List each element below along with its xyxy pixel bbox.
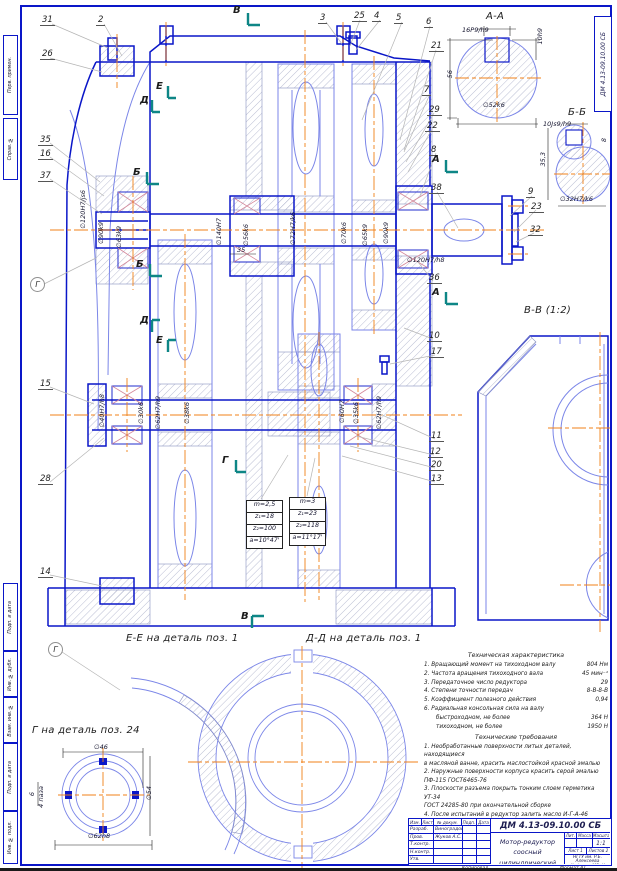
- dimension-label: Б-Б: [568, 108, 586, 118]
- tech-char-text: тихоходном, не более: [436, 723, 502, 732]
- dimension-label: 10Js9/h9: [543, 121, 571, 128]
- tech-char-text: 6. Радиальная консольная сила на валу: [424, 705, 544, 714]
- dimension-label: ∅65k9: [362, 224, 369, 246]
- dimension-label: ∅54: [146, 786, 153, 800]
- col-dokum: № докум.: [434, 819, 462, 826]
- part-callout: 26: [40, 50, 55, 60]
- part-callout: 2: [96, 16, 105, 26]
- tech-reqs-list: 1. Необработанные поверхности литых дета…: [424, 743, 608, 828]
- dimension-label: ∅70k6: [341, 222, 348, 244]
- section-letter: Д: [140, 316, 149, 326]
- tech-char-value: 0,94: [595, 696, 608, 705]
- dimension-label: Е-Е на деталь поз. 1: [126, 634, 238, 644]
- role-label: Т.контр.: [409, 841, 434, 848]
- mass-value: [577, 839, 593, 847]
- product-name-line2: соосный цилиндрический: [491, 847, 564, 864]
- tech-req-line: 2. Наружные поверхности корпуса красить …: [424, 768, 608, 777]
- title-block-role-row: Утв.: [409, 856, 490, 864]
- part-callout: 11: [429, 432, 444, 442]
- role-date: [477, 826, 490, 833]
- gear-table-row: m=2,5: [247, 501, 282, 513]
- gear-table-2: m=3z₁=23z₂=118a=11°17': [289, 497, 326, 546]
- frame-service-cell: Справ. №: [3, 118, 18, 180]
- role-label: Н.контр.: [409, 849, 434, 856]
- part-callout: 31: [40, 16, 55, 26]
- dimension-label: ∅90k9: [98, 222, 105, 244]
- tech-char-row: 5. Коэффициент полезного действия 0,94: [424, 696, 608, 705]
- sheets-total: Листов 2: [587, 848, 610, 854]
- dimension-label: 4 паза: [38, 786, 45, 808]
- tech-char-text: быстроходном, не более: [436, 714, 510, 723]
- tech-char-row: 6. Радиальная консольная сила на валу: [424, 705, 608, 714]
- role-date: [477, 849, 490, 856]
- dimension-label: А-А: [486, 12, 504, 22]
- title-block-role-row: Т.контр.: [409, 841, 490, 849]
- tech-char-row: быстроходном, не более 364 Н: [424, 714, 608, 723]
- gear-table-row: z₂=118: [290, 522, 325, 534]
- section-letter: В: [241, 612, 249, 622]
- role-label: Утв.: [409, 856, 434, 863]
- dimension-label: ∅62h8: [88, 833, 110, 840]
- section-letter: Г: [30, 277, 45, 292]
- col-data: Дата: [477, 819, 490, 826]
- product-name-line1: Мотор-редуктор: [491, 837, 564, 847]
- tech-req-line: 1. Необработанные поверхности литых дета…: [424, 743, 608, 760]
- part-callout: 25: [352, 12, 367, 22]
- vertical-doc-code-stamp: ДМ 4.13-09.10.00 СБ: [594, 16, 612, 112]
- part-callout: 35: [38, 136, 53, 146]
- tech-reqs-title: Технические требования: [424, 734, 608, 741]
- dimension-label: ∅35k6: [353, 402, 360, 424]
- org-line1: НГТУ им. Р.Е. Алексеева: [565, 856, 610, 865]
- dimension-label: 16P9/h9: [462, 27, 489, 34]
- part-callout: 10: [427, 332, 442, 342]
- dimension-label: ∅63k9: [116, 226, 123, 248]
- section-letter: Б: [136, 260, 144, 270]
- dimension-label: В-В (1:2): [524, 306, 571, 316]
- frame-service-cell: Подп. и дата: [3, 583, 18, 651]
- frame-service-cell: Взам. инв. №: [3, 697, 18, 743]
- dimension-label: ∅120H7/js6: [80, 190, 87, 229]
- tech-char-value: 364 Н: [591, 714, 608, 723]
- dimension-label: 35,3: [540, 152, 547, 166]
- role-date: [477, 834, 490, 841]
- title-block-roles: Разраб. Виноградов Д. Пров. Жуков А.С. Т…: [409, 826, 490, 864]
- lit-label: Лит.: [565, 833, 577, 838]
- scale-value: 1:1: [593, 839, 609, 847]
- role-signature: [463, 856, 477, 863]
- col-list: Лист: [422, 819, 434, 826]
- part-callout: 22: [425, 122, 440, 132]
- role-name: [434, 849, 463, 856]
- col-izm: Изм.: [409, 819, 422, 826]
- role-name: Виноградов Д.: [434, 826, 463, 833]
- frame-service-cell: Подп. и дата: [3, 743, 18, 811]
- dimension-label: ∅46: [94, 744, 108, 751]
- gear-table-row: z₁=23: [290, 510, 325, 522]
- gear-table-row: z₁=18: [247, 513, 282, 525]
- role-name: [434, 856, 463, 863]
- part-callout: 23: [529, 203, 544, 213]
- tech-char-value: 1950 Н: [587, 723, 608, 732]
- role-signature: [463, 841, 477, 848]
- tech-char-row: 1. Вращающий момент на тихоходном валу 8…: [424, 661, 608, 670]
- title-block-product-name: Мотор-редуктор соосный цилиндрический: [490, 833, 564, 864]
- gear-table-row: z₂=100: [247, 525, 282, 537]
- frame-service-label: Перв. примен.: [8, 57, 13, 93]
- frame-service-label: Инв. № подл.: [8, 821, 13, 854]
- dimension-label: 10h9: [537, 28, 544, 45]
- title-block-role-row: Разраб. Виноградов Д.: [409, 826, 490, 834]
- mass-label: Масса: [577, 833, 593, 838]
- lit-value: [565, 839, 577, 847]
- section-letter: Е: [156, 82, 163, 92]
- drawing-sheet: ДМ 4.13-09.10.00 СБ Перв. примен. Справ.…: [0, 0, 617, 871]
- part-callout: 38: [429, 184, 444, 194]
- part-callout: 7: [422, 86, 431, 96]
- dimension-label: ∅52k6: [483, 102, 505, 109]
- dimension-label: ∅40H7/h8: [99, 394, 106, 427]
- frame-service-cell: Инв. № дубл.: [3, 651, 18, 697]
- dimension-label: ∅32H7/k6: [560, 196, 593, 203]
- title-block-doc-code: ДМ 4.13-09.10.00 СБ: [490, 819, 610, 833]
- role-signature: [463, 826, 477, 833]
- tech-char-row: 3. Передаточное число редуктора 29: [424, 679, 608, 688]
- section-letter: Г: [222, 456, 228, 466]
- tech-req-line: ПФ-115 ГОСТ6465-76: [424, 777, 608, 786]
- dimension-label: Г на деталь поз. 24: [32, 726, 140, 736]
- section-v-v: [478, 336, 608, 620]
- sheet-number: Лист 1: [565, 848, 587, 854]
- frame-service-label: Подп. и дата: [8, 601, 13, 634]
- part-callout: 12: [428, 448, 443, 458]
- tech-char-text: 5. Коэффициент полезного действия: [424, 696, 536, 705]
- role-signature: [463, 834, 477, 841]
- title-block-role-row: Н.контр.: [409, 849, 490, 857]
- role-signature: [463, 849, 477, 856]
- section-letter: А: [432, 288, 440, 298]
- part-callout: 28: [38, 475, 53, 485]
- part-callout: 13: [429, 475, 444, 485]
- part-callout: 4: [372, 12, 381, 22]
- dimension-label: ∅56k6: [243, 224, 250, 246]
- role-name: Жуков А.С.: [434, 834, 463, 841]
- role-date: [477, 856, 490, 863]
- section-letter: А: [432, 155, 440, 165]
- dimension-label: 6: [29, 792, 36, 796]
- frame-service-label: Инв. № дубл.: [8, 658, 13, 691]
- part-callout: 32: [528, 226, 543, 236]
- section-letter: Е: [156, 336, 163, 346]
- section-letter: Б: [133, 168, 141, 178]
- dimension-label: ∅62H7/h9: [376, 396, 383, 429]
- tech-chars-list: 1. Вращающий момент на тихоходном валу 8…: [424, 661, 608, 732]
- dimension-label: ∅60H7: [339, 400, 346, 423]
- role-label: Разраб.: [409, 826, 434, 833]
- doc-code-vertical: ДМ 4.13-09.10.00 СБ: [600, 32, 607, 96]
- role-name: [434, 841, 463, 848]
- frame-service-label: Взам. инв. №: [8, 704, 13, 737]
- frame-service-cell: Инв. № подл.: [3, 811, 18, 864]
- role-date: [477, 841, 490, 848]
- part-callout: 20: [429, 461, 444, 471]
- gear-table-row: a=10°47': [247, 537, 282, 548]
- title-block-right: Лит. Масса Масштаб 1:1 Лист 1 Листов 2 Н…: [564, 833, 610, 864]
- frame-service-label: Подп. и дата: [8, 761, 13, 794]
- section-letter: В: [233, 6, 241, 16]
- dimension-label: ∅38k6: [184, 402, 191, 424]
- tech-char-text: 2. Частота вращения тихоходного вала: [424, 670, 543, 679]
- part-callout: 6: [424, 18, 433, 28]
- part-callout: 15: [38, 380, 53, 390]
- part-callout: 16: [38, 150, 53, 160]
- dimension-label: ∅72H7/k6: [290, 212, 297, 245]
- gear-table-row: m=3: [290, 498, 325, 510]
- tech-char-text: 1. Вращающий момент на тихоходном валу: [424, 661, 556, 670]
- dimension-label: ∅140H7: [216, 218, 223, 245]
- gear-table-1: m=2,5z₁=18z₂=100a=10°47': [246, 500, 283, 549]
- section-letter: Д: [140, 96, 149, 106]
- gear-table-row: a=11°17': [290, 534, 325, 545]
- section-letter: Г: [48, 642, 63, 657]
- title-block: ДМ 4.13-09.10.00 СБ Мотор-редуктор соосн…: [408, 818, 612, 866]
- dimension-label: 35: [237, 247, 245, 254]
- tech-char-value: 8-В-8-В: [587, 687, 608, 696]
- part-callout: 17: [429, 348, 444, 358]
- organization: НГТУ им. Р.Е. Алексеева Кафедра МСиК Гру…: [565, 855, 610, 865]
- tech-char-value: 29: [601, 679, 608, 688]
- tech-char-text: 4. Степени точности передач: [424, 687, 513, 696]
- tech-char-text: 3. Передаточное число редуктора: [424, 679, 527, 688]
- tech-chars-title: Техническая характеристика: [424, 652, 608, 659]
- housing-outline: [48, 26, 523, 626]
- dimension-label: ∅62H7/h9: [155, 396, 162, 429]
- tech-req-line: ГОСТ 24285-80 при окончательной сборке: [424, 802, 608, 811]
- part-callout: 37: [38, 172, 53, 182]
- tech-req-line: 3. Плоскости разъема покрыть тонким слое…: [424, 785, 608, 802]
- part-callout: 29: [427, 106, 442, 116]
- part-callout: 36: [427, 274, 442, 284]
- tech-req-line: в масляной ванне, красить маслостойкой к…: [424, 760, 608, 769]
- part-callout: 9: [526, 188, 535, 198]
- dimension-label: ∅120H7/h8: [407, 257, 445, 264]
- frame-service-cell: Перв. примен.: [3, 35, 18, 115]
- title-block-columns: Изм. Лист № докум. Подп. Дата: [409, 819, 490, 826]
- scale-label: Масштаб: [593, 833, 609, 838]
- part-callout: 5: [394, 14, 403, 24]
- dimension-label: Д-Д на деталь поз. 1: [306, 634, 421, 644]
- dimension-label: ∅30k6: [138, 402, 145, 424]
- tech-char-row: тихоходном, не более 1950 Н: [424, 723, 608, 732]
- part-callout: 14: [38, 568, 53, 578]
- frame-service-label: Справ. №: [8, 137, 13, 160]
- role-label: Пров.: [409, 834, 434, 841]
- tech-char-row: 2. Частота вращения тихоходного вала 45 …: [424, 670, 608, 679]
- tech-char-value: 804 Нм: [587, 661, 608, 670]
- part-callout: 21: [429, 42, 444, 52]
- tech-char-value: 45 мин⁻¹: [582, 670, 608, 679]
- title-block-role-row: Пров. Жуков А.С.: [409, 834, 490, 842]
- dimension-label: 56: [447, 70, 454, 78]
- dimension-label: ∅90k9: [383, 222, 390, 244]
- dimension-label: 8: [601, 138, 608, 142]
- tech-char-row: 4. Степени точности передач 8-В-8-В: [424, 687, 608, 696]
- part-callout: 3: [318, 14, 327, 24]
- col-podp: Подп.: [462, 819, 477, 826]
